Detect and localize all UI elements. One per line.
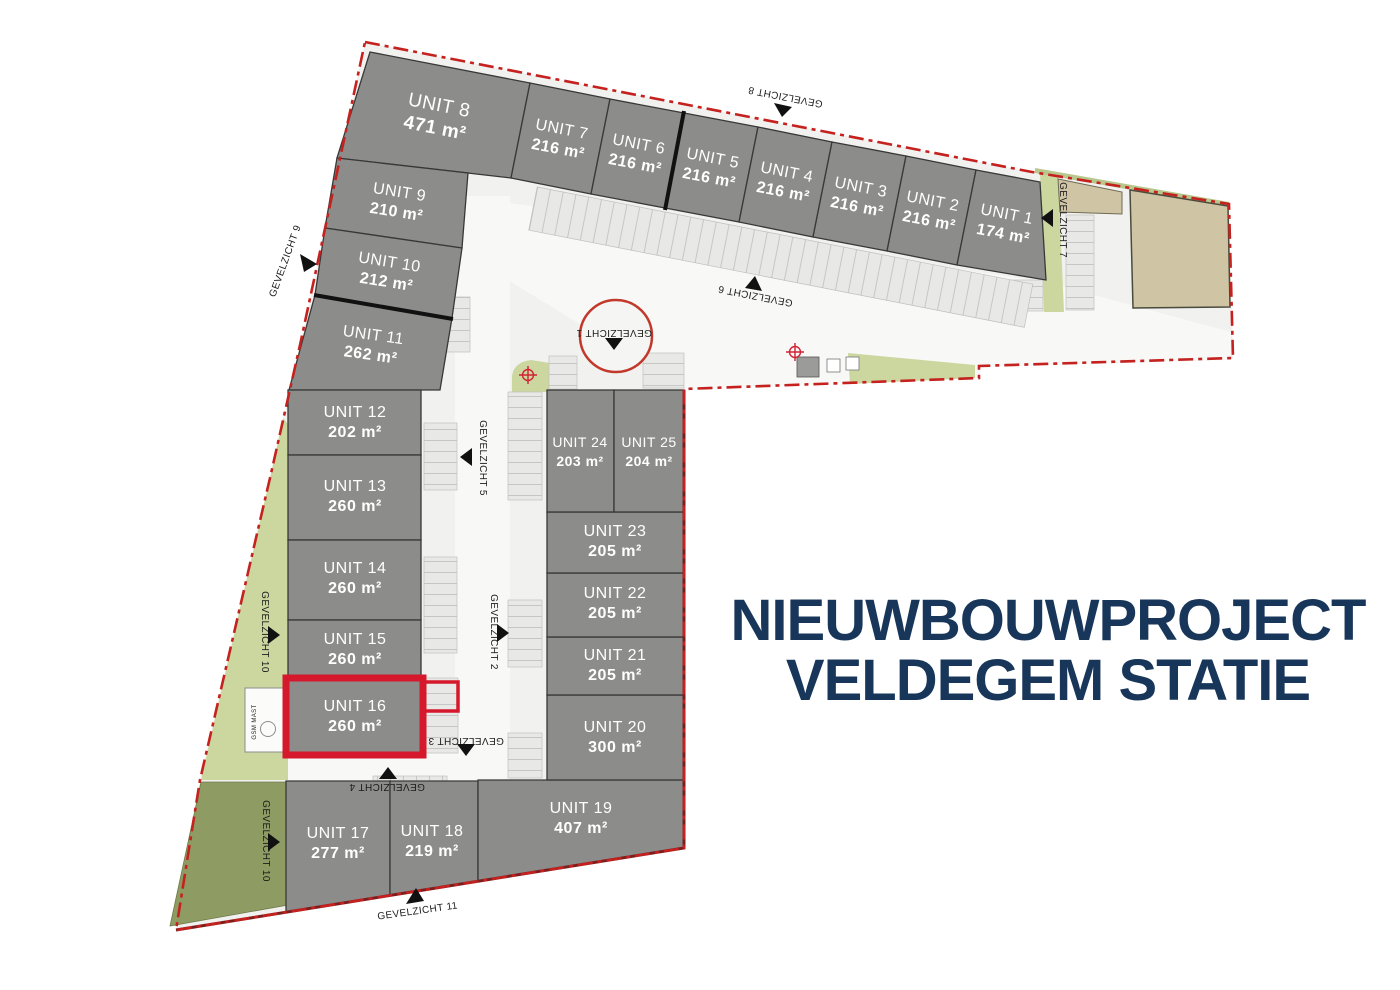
project-title-line2: VELDEGEM STATIE [786, 648, 1310, 713]
gsm-mast-cabin: GSM MAST [245, 688, 287, 752]
unit-16-shape[interactable] [288, 680, 421, 753]
project-title-line1: NIEUWBOUWPROJECT [731, 588, 1366, 653]
parking-strip [424, 423, 457, 490]
gsm-mast-label: GSM MAST [252, 704, 258, 739]
unit-12-shape[interactable] [288, 390, 421, 455]
unit-25-shape[interactable] [614, 390, 684, 512]
parking-strip [508, 392, 542, 500]
parking-strip [643, 353, 684, 388]
building-beige-large [1130, 190, 1230, 308]
gevelzicht-11-label: GEVELZICHT 11 [377, 900, 459, 922]
gevelzicht-9-label: GEVELZICHT 9 [268, 224, 304, 299]
parking-strip [508, 733, 542, 778]
parking-strip [1066, 215, 1094, 310]
parking-strip [508, 600, 542, 667]
svg-text:GEVELZICHT 4: GEVELZICHT 4 [349, 781, 425, 792]
svg-text:GEVELZICHT 5: GEVELZICHT 5 [477, 420, 488, 496]
svg-text:GEVELZICHT 11: GEVELZICHT 11 [377, 900, 459, 922]
gevelzicht-1-label: GEVELZICHT 1 [576, 327, 652, 338]
site-plan-canvas: GSM MAST [0, 0, 1400, 990]
gevelzicht-8-arrow-icon [774, 103, 792, 117]
site-plan-page: GSM MAST [0, 0, 1400, 990]
unit-24-shape[interactable] [547, 390, 614, 512]
gevelzicht-5-label: GEVELZICHT 5 [477, 420, 488, 496]
gevelzicht-7-label: GEVELZICHT 7 [1057, 182, 1068, 258]
svg-text:GEVELZICHT 7: GEVELZICHT 7 [1057, 182, 1068, 258]
parking-strip [549, 356, 577, 389]
gevelzicht-9-arrow-icon [300, 254, 317, 272]
unit-15-shape[interactable] [288, 620, 421, 680]
svg-text:GEVELZICHT 8: GEVELZICHT 8 [747, 84, 823, 109]
unit-21-shape[interactable] [547, 637, 684, 695]
svg-text:GEVELZICHT 9: GEVELZICHT 9 [268, 224, 304, 299]
parking-strip [424, 557, 457, 653]
svg-text:GEVELZICHT 1: GEVELZICHT 1 [576, 327, 652, 338]
unit-20-shape[interactable] [547, 695, 684, 780]
gevelzicht-4-label: GEVELZICHT 4 [349, 781, 425, 792]
gevelzicht-8-label: GEVELZICHT 8 [747, 84, 823, 109]
